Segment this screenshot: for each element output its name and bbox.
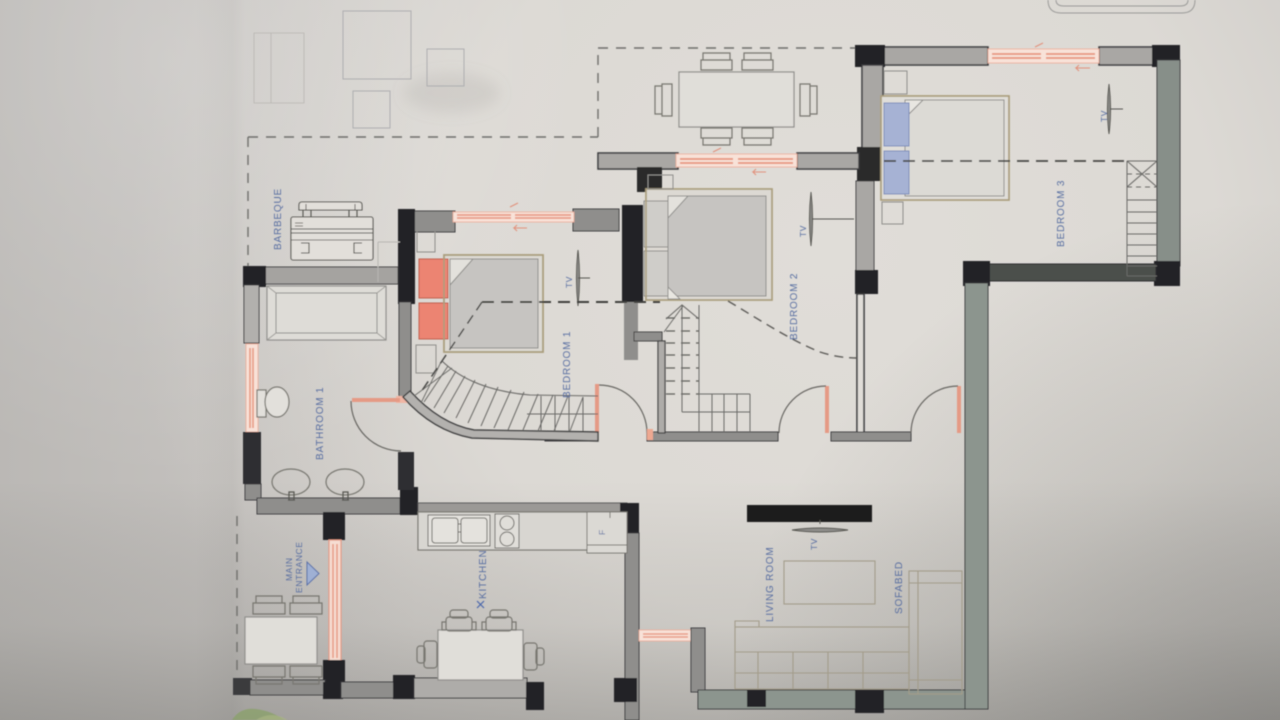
svg-text:TV: TV <box>1099 110 1109 122</box>
svg-text:TV: TV <box>564 276 574 288</box>
svg-text:BEDROOM 1: BEDROOM 1 <box>562 331 573 398</box>
svg-text:ENTRANCE: ENTRANCE <box>294 541 304 593</box>
svg-text:BARBEQUE: BARBEQUE <box>273 188 284 250</box>
svg-text:TV: TV <box>809 538 819 550</box>
svg-text:MAIN: MAIN <box>284 557 294 581</box>
svg-text:TV: TV <box>798 225 808 237</box>
svg-text:LIVING ROOM: LIVING ROOM <box>765 547 776 622</box>
svg-text:SOFABED: SOFABED <box>894 561 905 614</box>
svg-text:KITCHEN: KITCHEN <box>478 550 489 600</box>
svg-text:BATHROOM 1: BATHROOM 1 <box>315 387 326 460</box>
svg-text:BEDROOM 3: BEDROOM 3 <box>1056 180 1067 247</box>
svg-text:F: F <box>597 529 607 535</box>
svg-text:BEDROOM 2: BEDROOM 2 <box>789 273 800 340</box>
